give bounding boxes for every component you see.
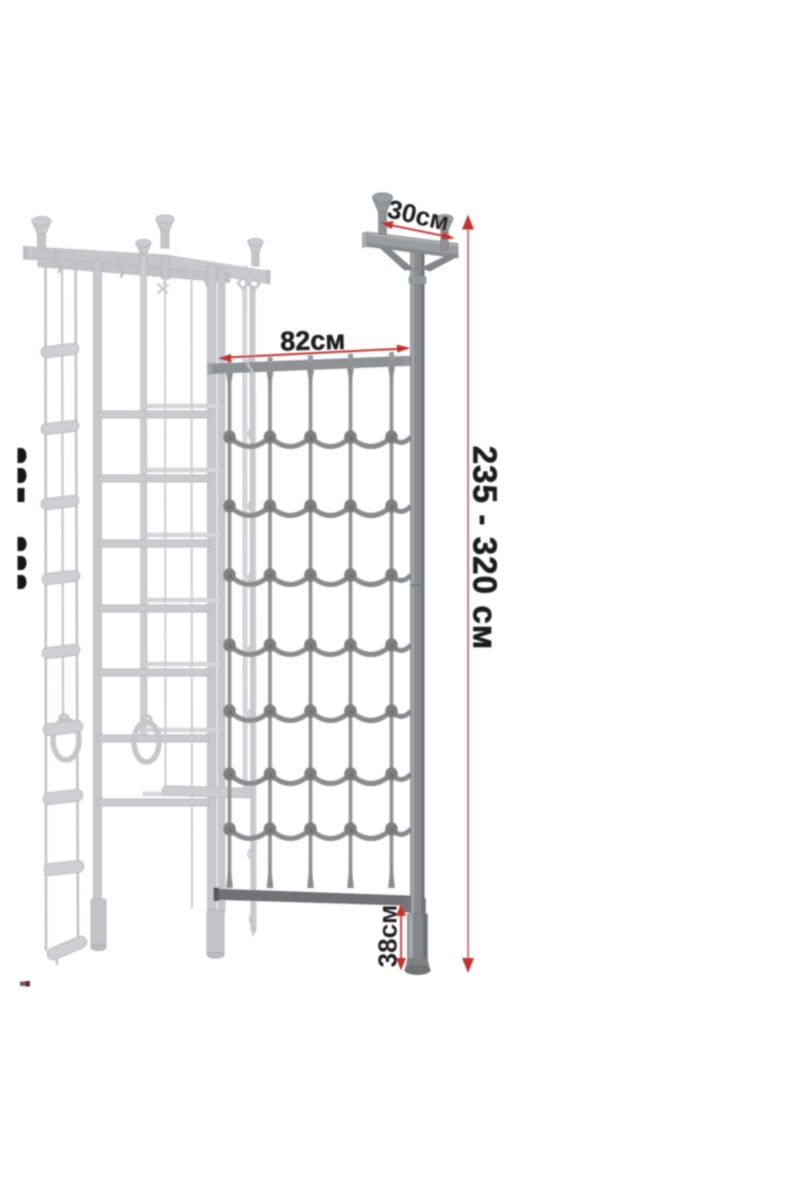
svg-text:235 - 320 см: 235 - 320 см — [467, 446, 504, 651]
svg-text:38см: 38см — [373, 905, 403, 968]
svg-text:82см: 82см — [280, 325, 346, 357]
